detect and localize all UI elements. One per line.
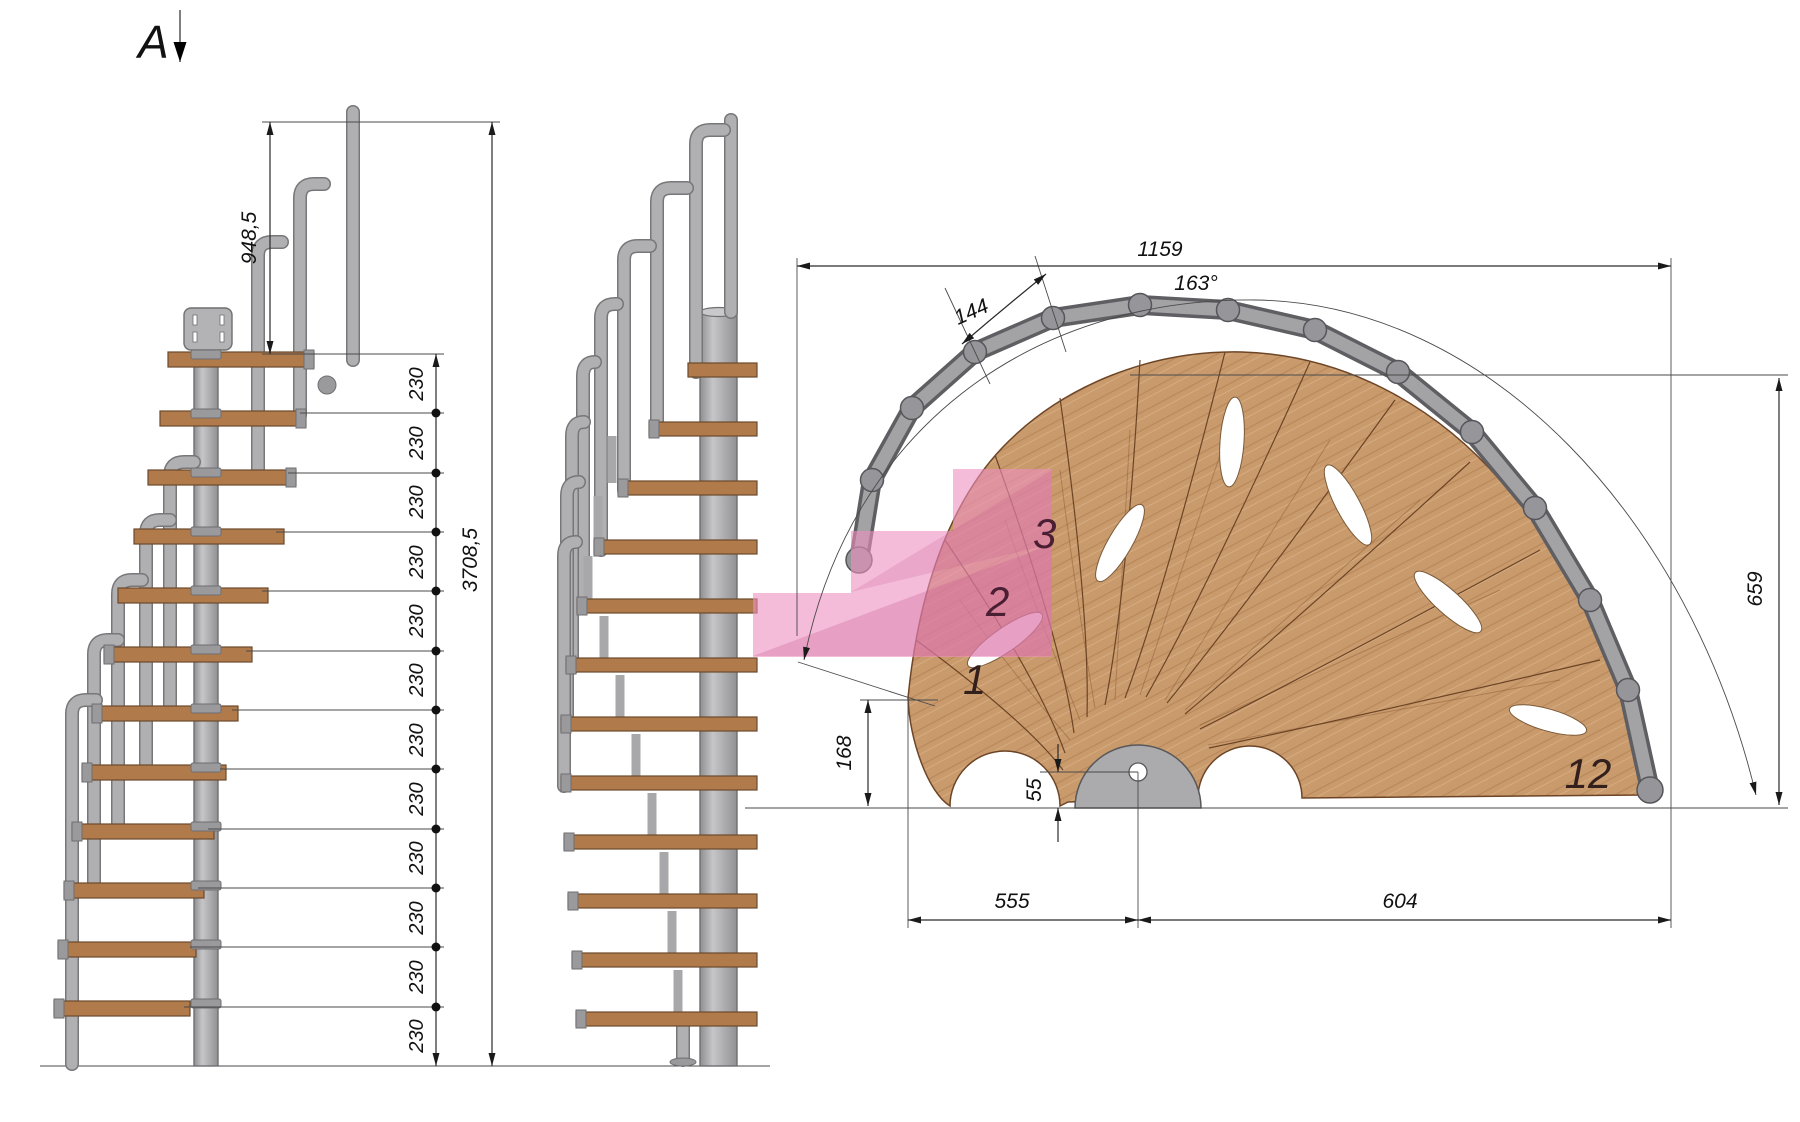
wall-mount-plate — [184, 308, 232, 350]
dim-tip-height: 168 — [833, 700, 868, 806]
dim-total-height: 3708,5 — [459, 122, 492, 1066]
riser-labels: 230 230 230 230 230 230 230 230 230 230 … — [406, 367, 428, 1053]
dim-label-168: 168 — [833, 735, 856, 770]
dim-span-right: 604 — [1138, 890, 1671, 920]
dim-height-right: 659 — [1744, 378, 1779, 805]
plan-view-fan: 1 2 3 12 — [753, 294, 1663, 809]
riser-label: 230 — [406, 545, 428, 579]
riser-label: 230 — [406, 663, 428, 697]
dim-label-659: 659 — [1744, 571, 1767, 606]
dim-span-left: 555 — [908, 890, 1138, 920]
highlight-steps-overlay — [753, 469, 1052, 657]
wall-flange — [318, 376, 336, 394]
step-number-1: 1 — [963, 656, 986, 703]
section-label: A — [135, 16, 169, 68]
riser-label: 230 — [406, 604, 428, 638]
riser-label: 230 — [406, 960, 428, 994]
dim-label-555: 555 — [994, 890, 1029, 913]
riser-label: 230 — [406, 901, 428, 935]
dim-total-width: 1159 — [797, 238, 1671, 266]
step-number-12: 12 — [1565, 750, 1612, 797]
section-arrow-marker: A — [135, 10, 180, 68]
front-elevation-view — [561, 120, 757, 1066]
drawing-canvas: A — [0, 0, 1800, 1122]
dim-label-3708-5: 3708,5 — [459, 528, 482, 593]
riser-label: 230 — [406, 782, 428, 816]
dim-label-55: 55 — [1023, 778, 1046, 802]
dim-label-604: 604 — [1382, 890, 1417, 913]
riser-label: 230 — [406, 841, 428, 875]
step-number-2: 2 — [985, 578, 1009, 625]
riser-label: 230 — [406, 723, 428, 757]
dim-label-948-5: 948,5 — [238, 211, 261, 264]
staircase-technical-drawing: A — [0, 0, 1800, 1122]
step-number-3: 3 — [1033, 510, 1056, 557]
riser-label: 230 — [406, 485, 428, 519]
dim-label-163deg: 163° — [1174, 272, 1217, 295]
riser-label: 230 — [406, 426, 428, 460]
riser-label: 230 — [406, 1019, 428, 1053]
dim-label-1159: 1159 — [1137, 238, 1182, 261]
riser-label: 230 — [406, 367, 428, 401]
